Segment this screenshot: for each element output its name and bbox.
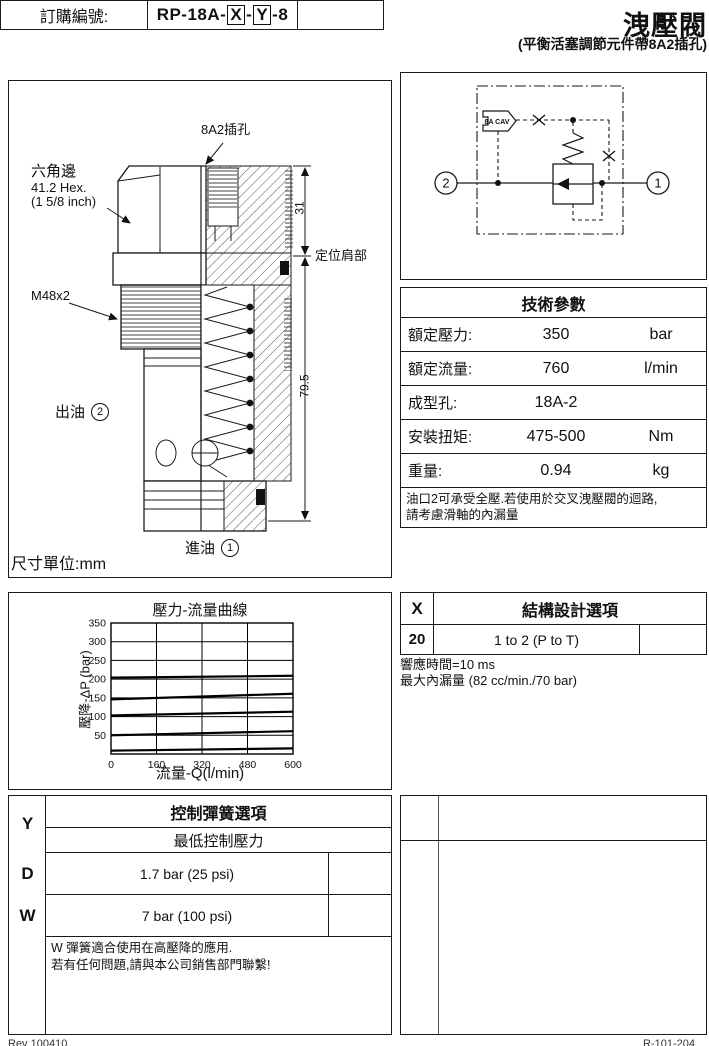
- dim-79-5-label: 79.5: [298, 374, 312, 397]
- schematic-plug-label: 8A CAV: [485, 119, 510, 126]
- x-option-code: 20: [401, 625, 434, 654]
- tech-value: 0.94: [496, 462, 616, 480]
- empty-panel-header-row: [401, 796, 706, 841]
- order-code-suffix: -8: [272, 5, 288, 25]
- tech-label: 額定流量:: [401, 358, 496, 379]
- chart-x-axis-label: 流量-Q(l/min): [9, 762, 391, 783]
- tech-value: 18A-2: [496, 394, 616, 412]
- order-code-y-box: Y: [253, 5, 271, 25]
- chart-y-axis-label: 壓降-ΔP (bar): [75, 615, 94, 765]
- page-subtitle: (平衡活塞調節元件帶8A2插孔): [518, 34, 707, 54]
- empty-panel: [400, 795, 707, 1035]
- y-options-subtitle: 最低控制壓力: [46, 828, 391, 853]
- svg-text:50: 50: [94, 730, 106, 742]
- inlet-label-text: 進油: [185, 537, 215, 558]
- y-option-spare-cell: [329, 853, 391, 894]
- y-options-key: Y: [9, 814, 46, 834]
- hex-label-line1: 六角邊: [31, 163, 76, 180]
- shoulder-label: 定位肩部: [315, 249, 367, 264]
- x-option-spare-cell: [640, 625, 706, 654]
- pressure-flow-chart: 501001502002503003500160320480600: [9, 593, 390, 788]
- tech-params-note: 油口2可承受全壓.若使用於交叉洩壓閥的迴路, 請考慮滑軸的內漏量: [401, 488, 706, 524]
- x-options-note: 響應時間=10 ms 最大內漏量 (82 cc/min./70 bar): [400, 657, 707, 690]
- order-code-row: 訂購編號: RP-18A-X-Y-8: [0, 0, 384, 30]
- tech-label: 額定壓力:: [401, 324, 496, 345]
- tech-value: 350: [496, 326, 616, 344]
- order-code-prefix: RP-18A-: [157, 5, 227, 25]
- tech-row-weight: 重量: 0.94 kg: [401, 454, 706, 488]
- x-note-line2: 最大內漏量 (82 cc/min./70 bar): [400, 673, 707, 689]
- tech-unit: Nm: [616, 428, 706, 446]
- footer-doc-number: R-101-204: [643, 1038, 695, 1046]
- tech-note-line2: 請考慮滑軸的內漏量: [406, 507, 701, 523]
- y-note-line1: W 彈簧適合使用在高壓降的應用.: [51, 940, 270, 957]
- tech-unit: bar: [616, 326, 706, 344]
- footer-revision: Rev 100410: [8, 1038, 67, 1046]
- chart-title: 壓力-流量曲線: [9, 599, 391, 620]
- x-note-line1: 響應時間=10 ms: [400, 657, 707, 673]
- outlet-port-label: 出油 2: [55, 401, 109, 422]
- x-option-desc: 1 to 2 (P to T): [434, 625, 640, 654]
- inlet-port-label: 進油 1: [185, 537, 239, 558]
- tech-params-panel: 技術參數 額定壓力: 350 bar 額定流量: 760 l/min 成型孔: …: [400, 287, 707, 528]
- thread-label: M48x2: [31, 289, 70, 304]
- order-code-x-box: X: [227, 5, 245, 25]
- order-code-sep: -: [246, 5, 252, 25]
- order-code: RP-18A-X-Y-8: [148, 1, 298, 29]
- hydraulic-schematic: 8A CAV 2 1: [401, 73, 705, 278]
- tech-row-pressure: 額定壓力: 350 bar: [401, 318, 706, 352]
- y-option-spare-cell: [329, 895, 391, 936]
- hydraulic-schematic-panel: 8A CAV 2 1: [400, 72, 707, 280]
- y-options-note: W 彈簧適合使用在高壓降的應用. 若有任何問題,請與本公司銷售部門聯繫!: [51, 940, 270, 974]
- valve-drawing-panel: 8A2插孔 六角邊 41.2 Hex. (1 5/8 inch) M48x2 3…: [8, 80, 392, 578]
- tech-label: 成型孔:: [401, 392, 496, 413]
- y-option-desc: 7 bar (100 psi): [46, 895, 329, 936]
- x-option-row-20: 20 1 to 2 (P to T): [401, 625, 706, 654]
- schematic-port-1: 1: [654, 176, 661, 191]
- dim-31-label: 31: [293, 201, 307, 214]
- inlet-port-badge: 1: [221, 539, 239, 557]
- order-spare-cell: [298, 1, 383, 29]
- y-option-row-w: 7 bar (100 psi): [46, 895, 391, 937]
- y-option-code-d: D: [9, 864, 46, 884]
- tech-row-flow: 額定流量: 760 l/min: [401, 352, 706, 386]
- x-options-section: X 結構設計選項 20 1 to 2 (P to T) 響應時間=10 ms 最…: [400, 592, 707, 690]
- pressure-flow-chart-panel: 501001502002503003500160320480600 壓力-流量曲…: [8, 592, 392, 790]
- tech-note-line1: 油口2可承受全壓.若使用於交叉洩壓閥的迴路,: [406, 491, 701, 507]
- tech-value: 760: [496, 360, 616, 378]
- outlet-label-text: 出油: [55, 401, 85, 422]
- tech-label: 重量:: [401, 460, 496, 481]
- cavity-label: 8A2插孔: [201, 123, 250, 138]
- y-note-line2: 若有任何問題,請與本公司銷售部門聯繫!: [51, 957, 270, 974]
- outlet-port-badge: 2: [91, 403, 109, 421]
- x-options-title: 結構設計選項: [434, 593, 706, 624]
- datasheet-page: 洩壓閥 (平衡活塞調節元件帶8A2插孔) 訂購編號: RP-18A-X-Y-8: [0, 0, 709, 1046]
- tech-value: 475-500: [496, 428, 616, 446]
- tech-label: 安裝扭矩:: [401, 426, 496, 447]
- order-label: 訂購編號:: [1, 1, 148, 29]
- schematic-port-2: 2: [442, 176, 449, 191]
- tech-row-torque: 安裝扭矩: 475-500 Nm: [401, 420, 706, 454]
- valve-cross-section-drawing: [9, 81, 390, 576]
- y-option-desc: 1.7 bar (25 psi): [46, 853, 329, 894]
- tech-unit: l/min: [616, 360, 706, 378]
- y-options-panel: Y 控制彈簧選項 最低控制壓力 1.7 bar (25 psi) D 7 bar…: [8, 795, 392, 1035]
- x-options-header: X 結構設計選項: [401, 593, 706, 625]
- hex-label-line3: (1 5/8 inch): [31, 195, 96, 210]
- units-note: 尺寸單位:mm: [11, 550, 106, 574]
- tech-params-title: 技術參數: [401, 288, 706, 318]
- tech-unit: kg: [616, 462, 706, 480]
- y-option-row-d: 1.7 bar (25 psi): [46, 853, 391, 895]
- y-options-title: 控制彈簧選項: [46, 796, 391, 828]
- x-options-key: X: [401, 593, 434, 624]
- y-option-code-w: W: [9, 906, 46, 926]
- x-options-table: X 結構設計選項 20 1 to 2 (P to T): [400, 592, 707, 655]
- tech-row-cavity: 成型孔: 18A-2: [401, 386, 706, 420]
